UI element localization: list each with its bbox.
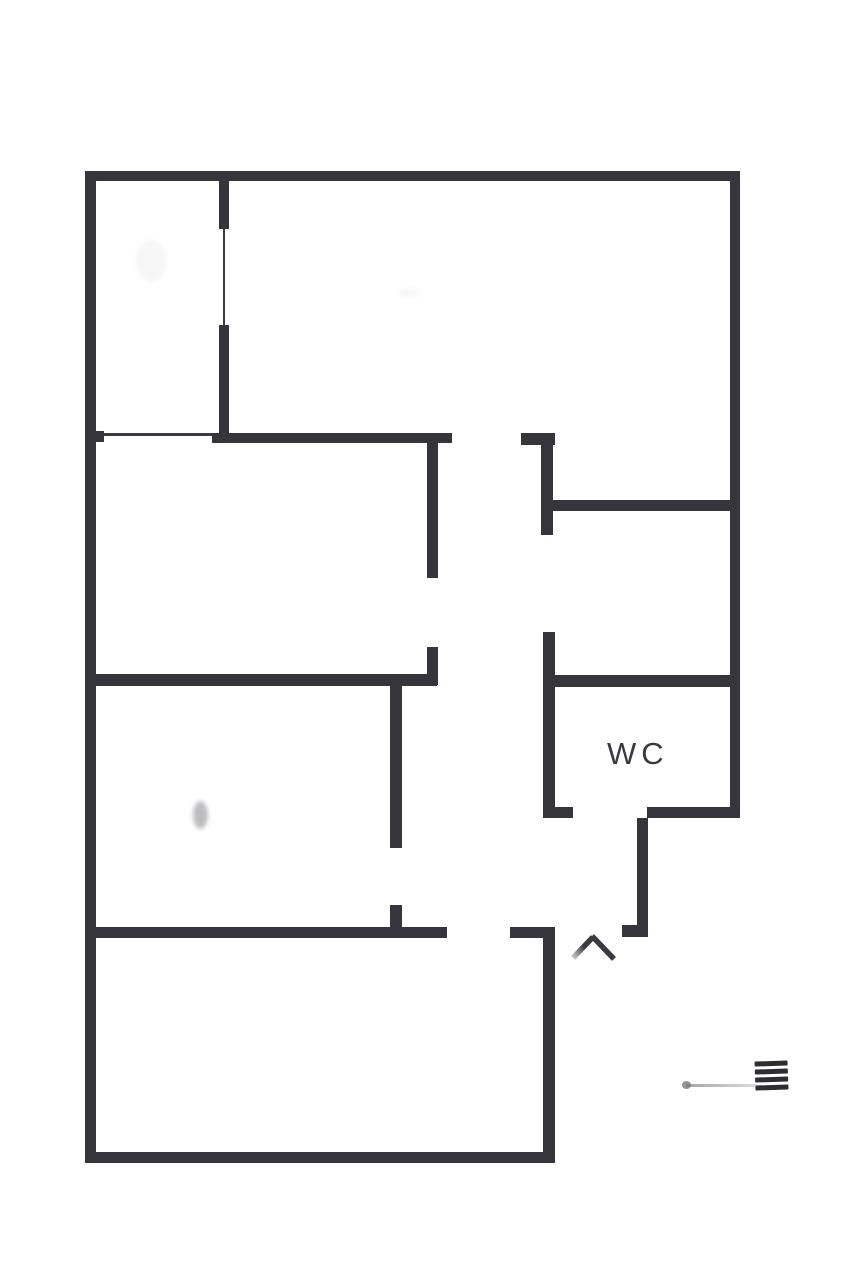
wall-hall-right-upper: [541, 433, 553, 535]
entrance-chevron-up-icon: [566, 928, 620, 964]
wall-entry-right: [637, 818, 648, 937]
stain-mark: [193, 801, 208, 829]
faint-line-mark: [686, 1084, 758, 1087]
wall-wc-left-foot: [543, 807, 573, 818]
outer-wall-right: [730, 171, 740, 818]
wall-hall-left-upper: [427, 433, 438, 578]
door-line-room1: [223, 229, 225, 325]
wall-wc-left: [543, 632, 555, 818]
stain-mark: [136, 240, 166, 282]
artifact-stripe: [755, 1077, 788, 1083]
outer-wall-left: [85, 171, 96, 1163]
wall-room2-bottom: [85, 674, 437, 686]
artifact-stripe: [755, 1060, 788, 1066]
artifact-stripe: [755, 1085, 788, 1091]
wall-room4-right: [543, 927, 555, 1163]
wall-room4-top-left: [85, 927, 447, 938]
stain-mark: [398, 288, 420, 298]
outer-wall-bottom: [85, 1152, 555, 1163]
striped-mark: [755, 1060, 789, 1090]
wall-room1-right-lower: [219, 325, 229, 443]
wall-entry-right-foot: [622, 925, 648, 937]
wc-room-label: WC: [607, 738, 669, 769]
dot-mark: [682, 1081, 691, 1089]
wall-room3-right-upper: [390, 678, 402, 848]
door-line-room2-top: [96, 433, 212, 436]
wall-room2-top: [212, 433, 452, 443]
artifact-stripe: [755, 1069, 788, 1075]
wall-wc-top: [543, 675, 740, 687]
wall-left-nub: [96, 431, 104, 442]
wall-wc-bottom-right: [647, 807, 740, 818]
wall-rightroom-divider: [550, 500, 740, 511]
floor-plan: WC: [0, 0, 853, 1280]
wall-room1-right-upper: [219, 171, 229, 229]
outer-wall-top: [85, 171, 740, 181]
